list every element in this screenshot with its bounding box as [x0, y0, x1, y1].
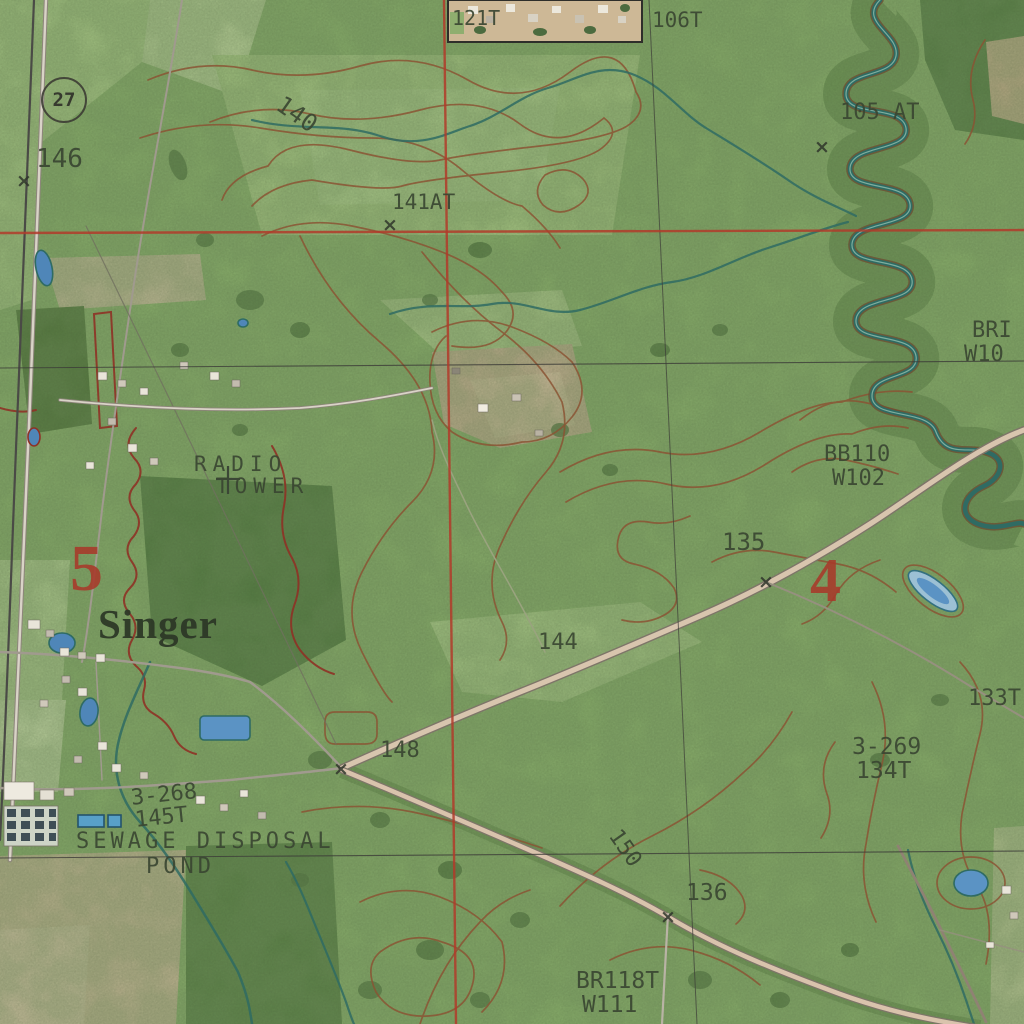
route-27-number: 27: [53, 89, 76, 111]
map-graphics: [0, 0, 1024, 1024]
topo-map-canvas[interactable]: 27 146140121T106T141AT105 ATBRIW10BB110W…: [0, 0, 1024, 1024]
route-27-shield: 27: [41, 77, 87, 123]
photo-inset-box: [448, 0, 642, 42]
